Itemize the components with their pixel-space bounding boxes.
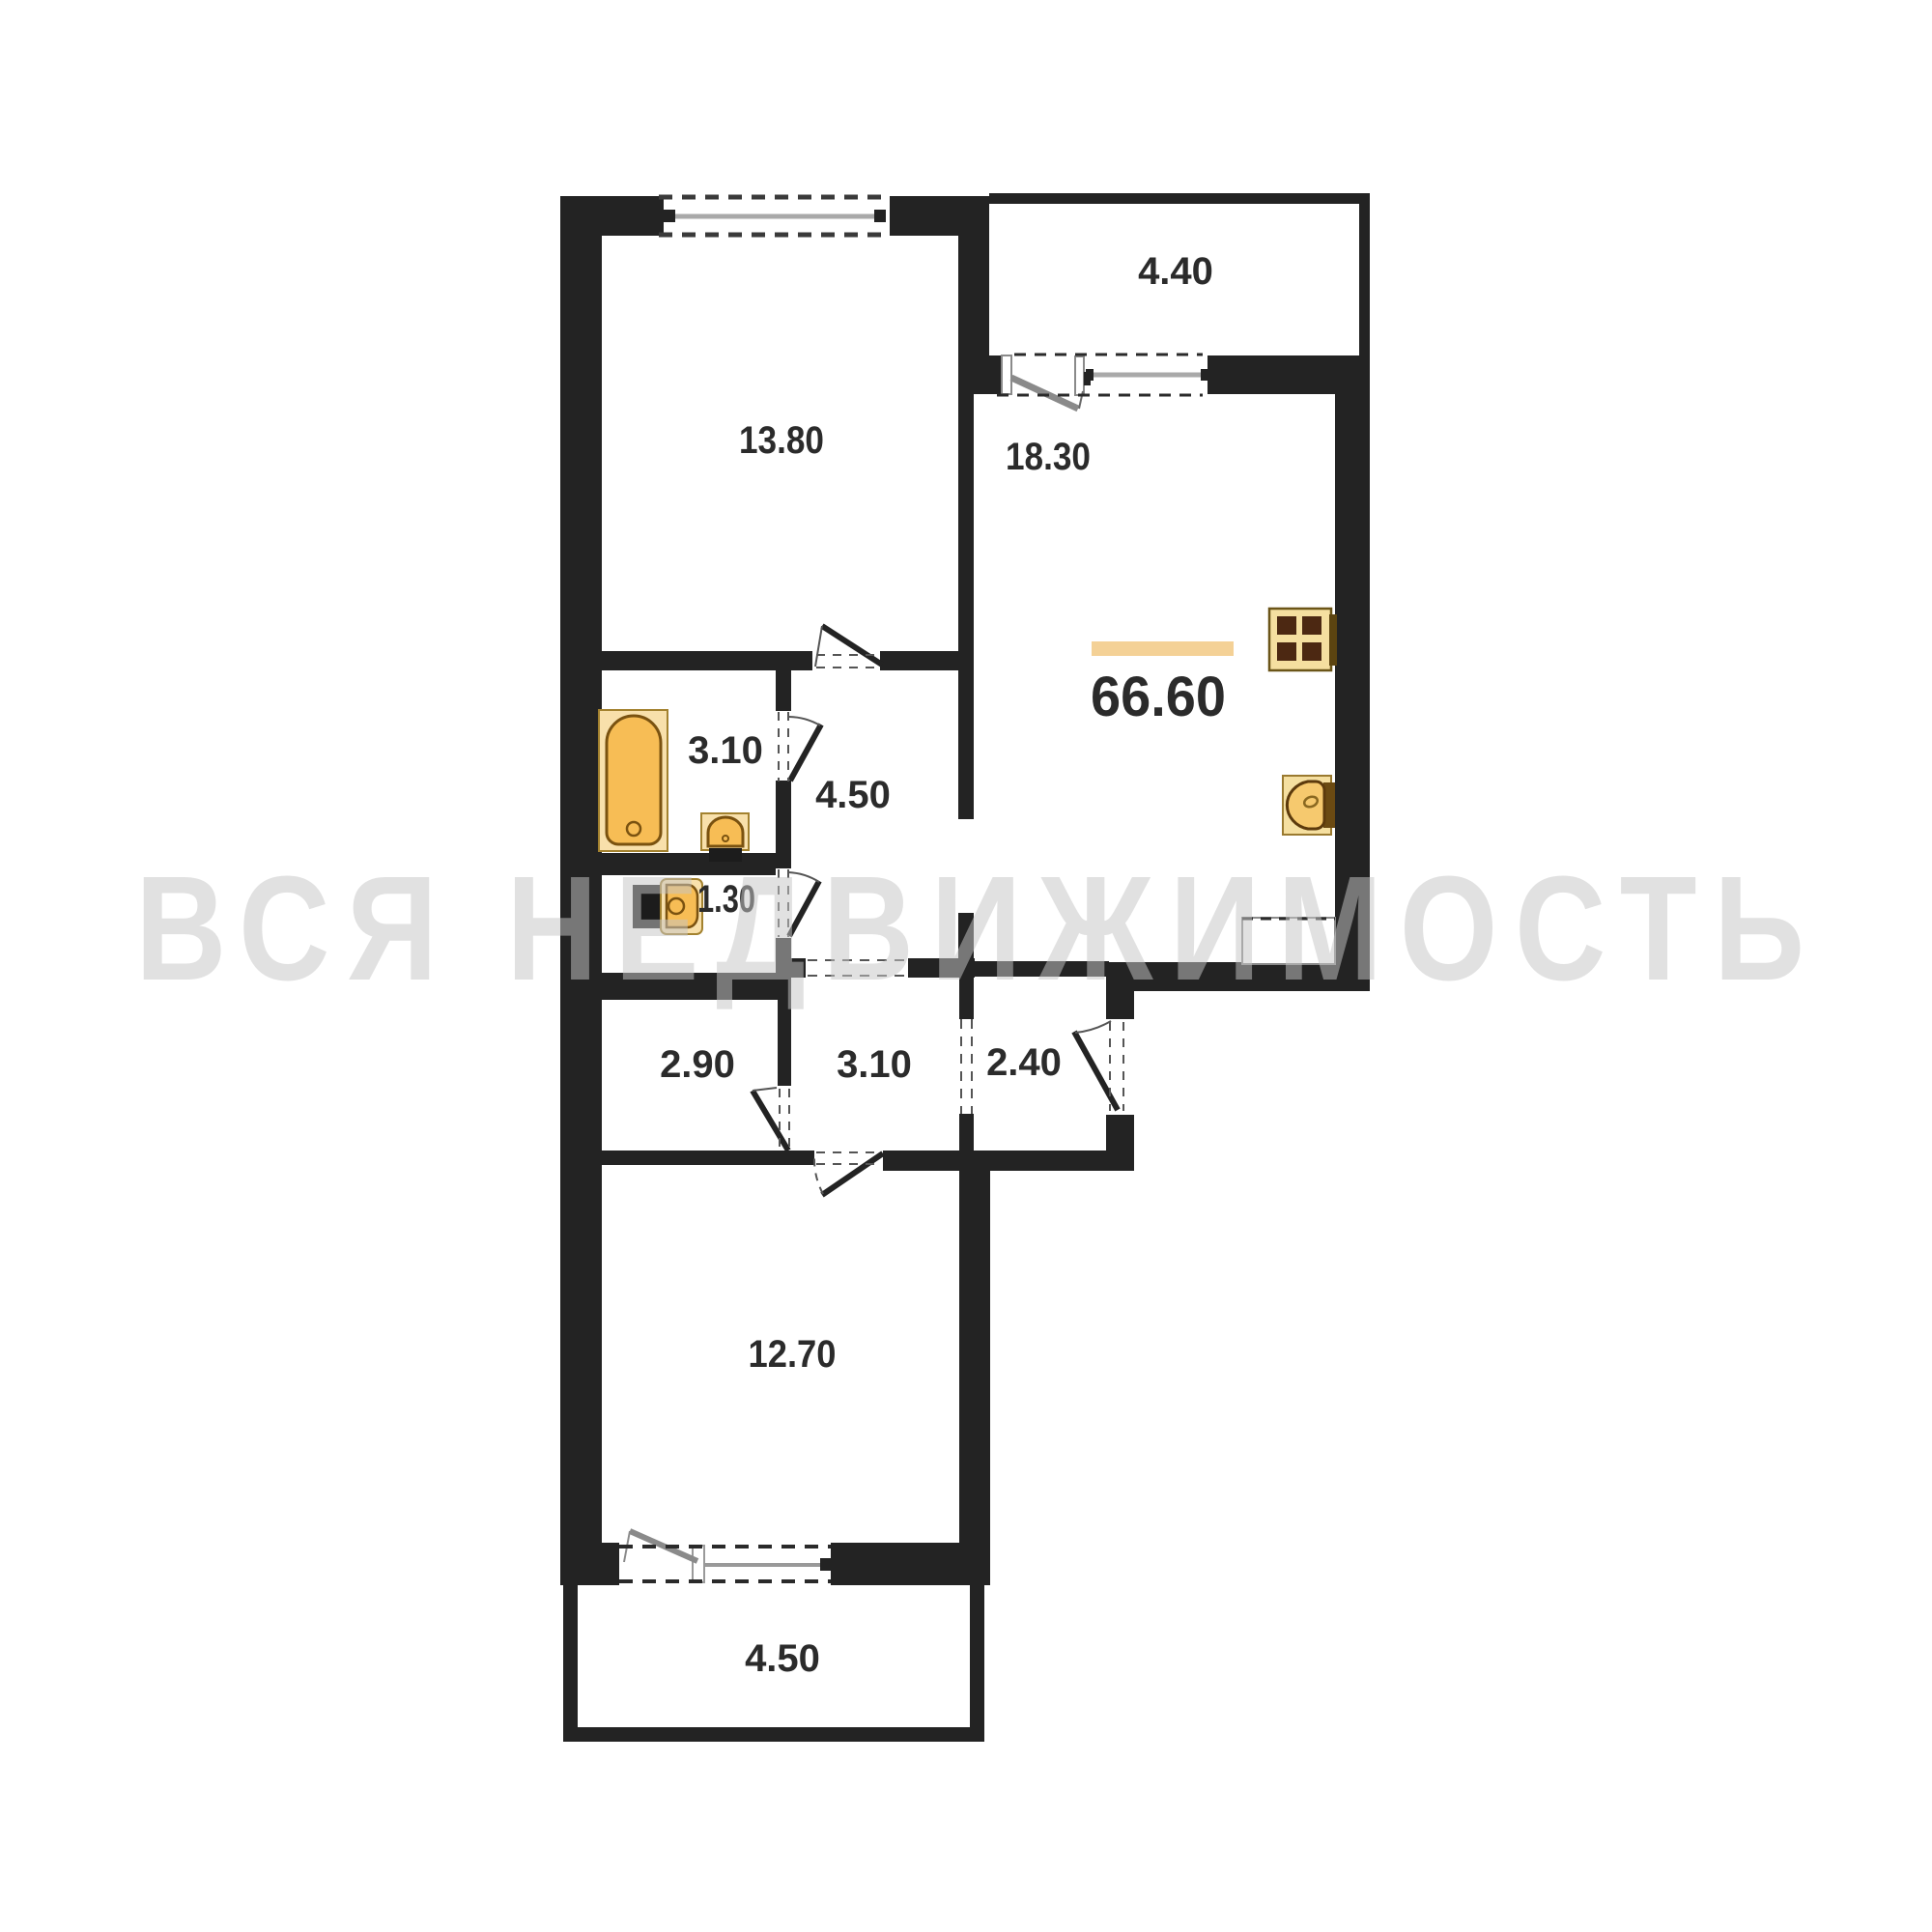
svg-text:12.70: 12.70 [749,1333,837,1376]
svg-text:3.10: 3.10 [837,1043,912,1086]
svg-text:3.10: 3.10 [688,729,763,772]
svg-text:66.60: 66.60 [1091,666,1226,728]
svg-text:4.50: 4.50 [815,774,891,816]
svg-text:13.80: 13.80 [739,419,824,462]
svg-text:2.90: 2.90 [660,1043,735,1086]
svg-text:4.50: 4.50 [745,1637,820,1680]
svg-text:2.40: 2.40 [986,1041,1062,1084]
svg-text:18.30: 18.30 [1006,436,1091,478]
svg-text:4.40: 4.40 [1138,250,1213,293]
svg-text:ВСЯ НЕДВИЖИМОСТЬ: ВСЯ НЕДВИЖИМОСТЬ [135,846,1822,1011]
